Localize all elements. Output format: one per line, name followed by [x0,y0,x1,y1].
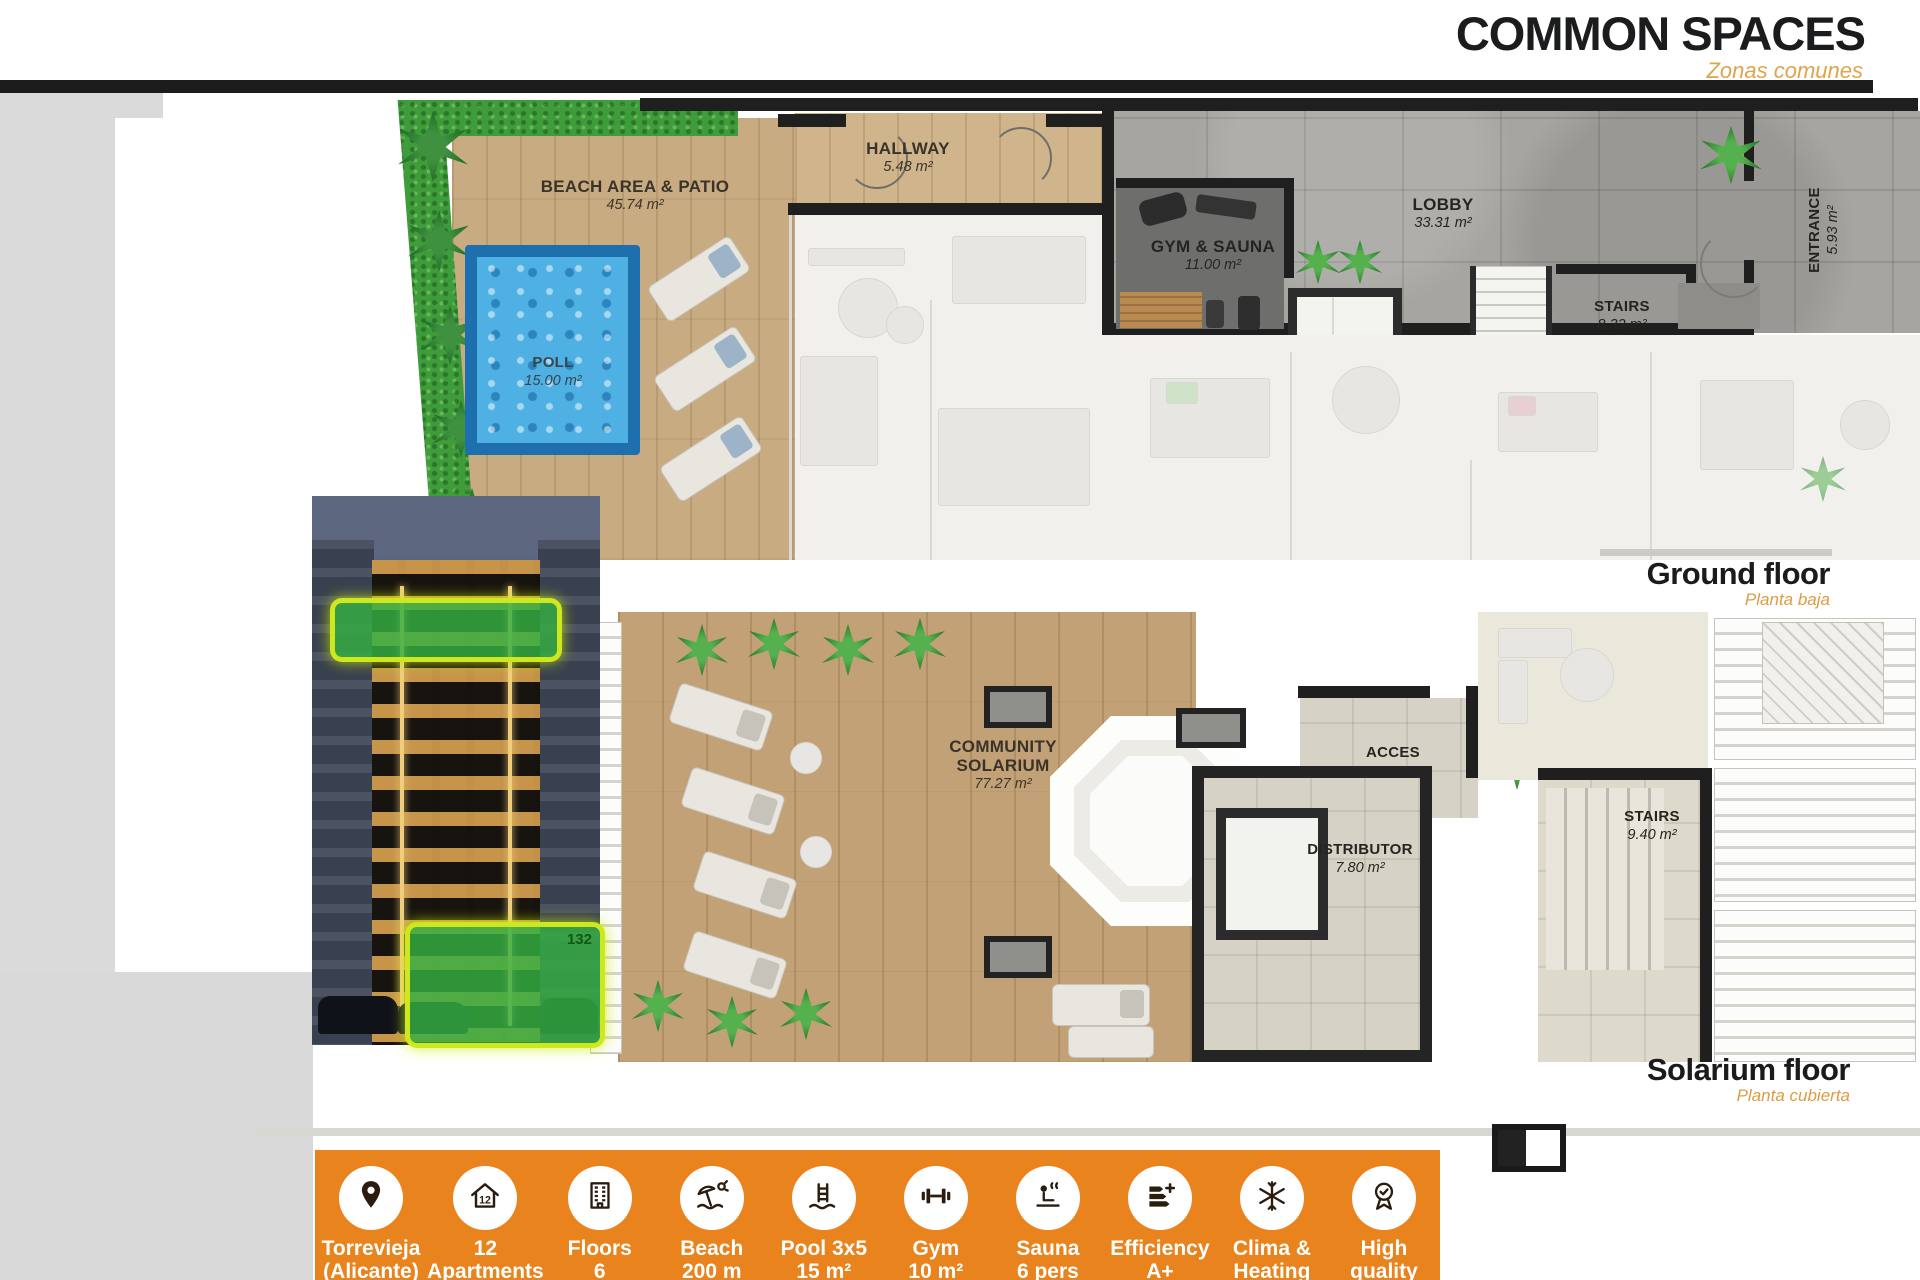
lounger-pillow [747,793,778,827]
lounger-pillow [759,877,790,911]
feature-quality: High quality [1328,1166,1440,1280]
lounger-pillow [749,957,780,991]
feature-circle [792,1166,856,1230]
feature-circle [1352,1166,1416,1230]
feature-location: Torrevieja (Alicante) [315,1166,427,1280]
location-pin-icon [353,1178,389,1219]
spiral-stair-sketch [1762,622,1884,724]
feature-circle [680,1166,744,1230]
beach-icon [694,1178,730,1219]
feature-apartments: 12 12 Apartments [427,1166,544,1280]
floors-icon [582,1178,618,1219]
quality-icon [1366,1178,1402,1219]
pool-ladder-icon [806,1178,842,1219]
feature-floors: Floors 6 [544,1166,656,1280]
brand-logo-mark [1492,1124,1566,1172]
wall [1466,686,1478,778]
elevator [1216,808,1328,940]
solarium-floor-caption: Solarium floor Planta cubierta [1520,1052,1850,1106]
feature-circle [1128,1166,1192,1230]
side-table [790,742,822,774]
furniture [1498,660,1528,724]
sun-lounger [1052,984,1150,1026]
clima-icon [1254,1178,1290,1219]
feature-beach: Beach 200 m [656,1166,768,1280]
roof-vent [1176,708,1246,748]
feature-circle [1240,1166,1304,1230]
sun-lounger [1068,1026,1154,1058]
feature-clima: Clima & Heating [1216,1166,1328,1280]
roof-vent [984,936,1052,978]
pergola-roof [1714,910,1916,1062]
solarium-highlight-box [330,598,562,662]
feature-circle [568,1166,632,1230]
feature-bar: Torrevieja (Alicante) 12 12 Apartments F… [315,1150,1440,1280]
feature-gym: Gym 10 m² [880,1166,992,1280]
brochure-page: COMMON SPACES Zonas comunes POLL 15.00 m… [0,0,1920,1280]
roof-vent [984,686,1052,728]
gym-icon [918,1178,954,1219]
feature-efficiency: Efficiency A+ [1104,1166,1216,1280]
feature-circle: 12 [453,1166,517,1230]
lounger-pillow [1120,990,1144,1018]
bottom-divider [255,1128,1920,1136]
highlight-badge: 132 [567,931,592,948]
solarium-floor-plan: COMMUNITY SOLARIUM 77.27 m² ACCES DISTRI… [0,0,1920,1280]
feature-sauna: Sauna 6 pers [992,1166,1104,1280]
sauna-icon [1030,1178,1066,1219]
ground-highlight-box: 132 [405,922,605,1048]
wall [1538,768,1710,780]
furniture [1498,628,1572,658]
svg-text:12: 12 [479,1194,491,1206]
feature-circle [1016,1166,1080,1230]
lounger-pillow [735,709,766,743]
photo-car [318,996,398,1034]
efficiency-icon [1142,1178,1178,1219]
feature-circle [339,1166,403,1230]
furniture [1560,648,1614,702]
apartments-icon: 12 [467,1178,503,1219]
staircase [1546,788,1664,970]
feature-circle [904,1166,968,1230]
feature-pool: Pool 3x5 15 m² [768,1166,880,1280]
brand-logo-fill [1498,1130,1526,1166]
pergola-roof [1714,768,1916,902]
wall [1298,686,1430,698]
wall [1700,768,1712,1062]
side-table [800,836,832,868]
